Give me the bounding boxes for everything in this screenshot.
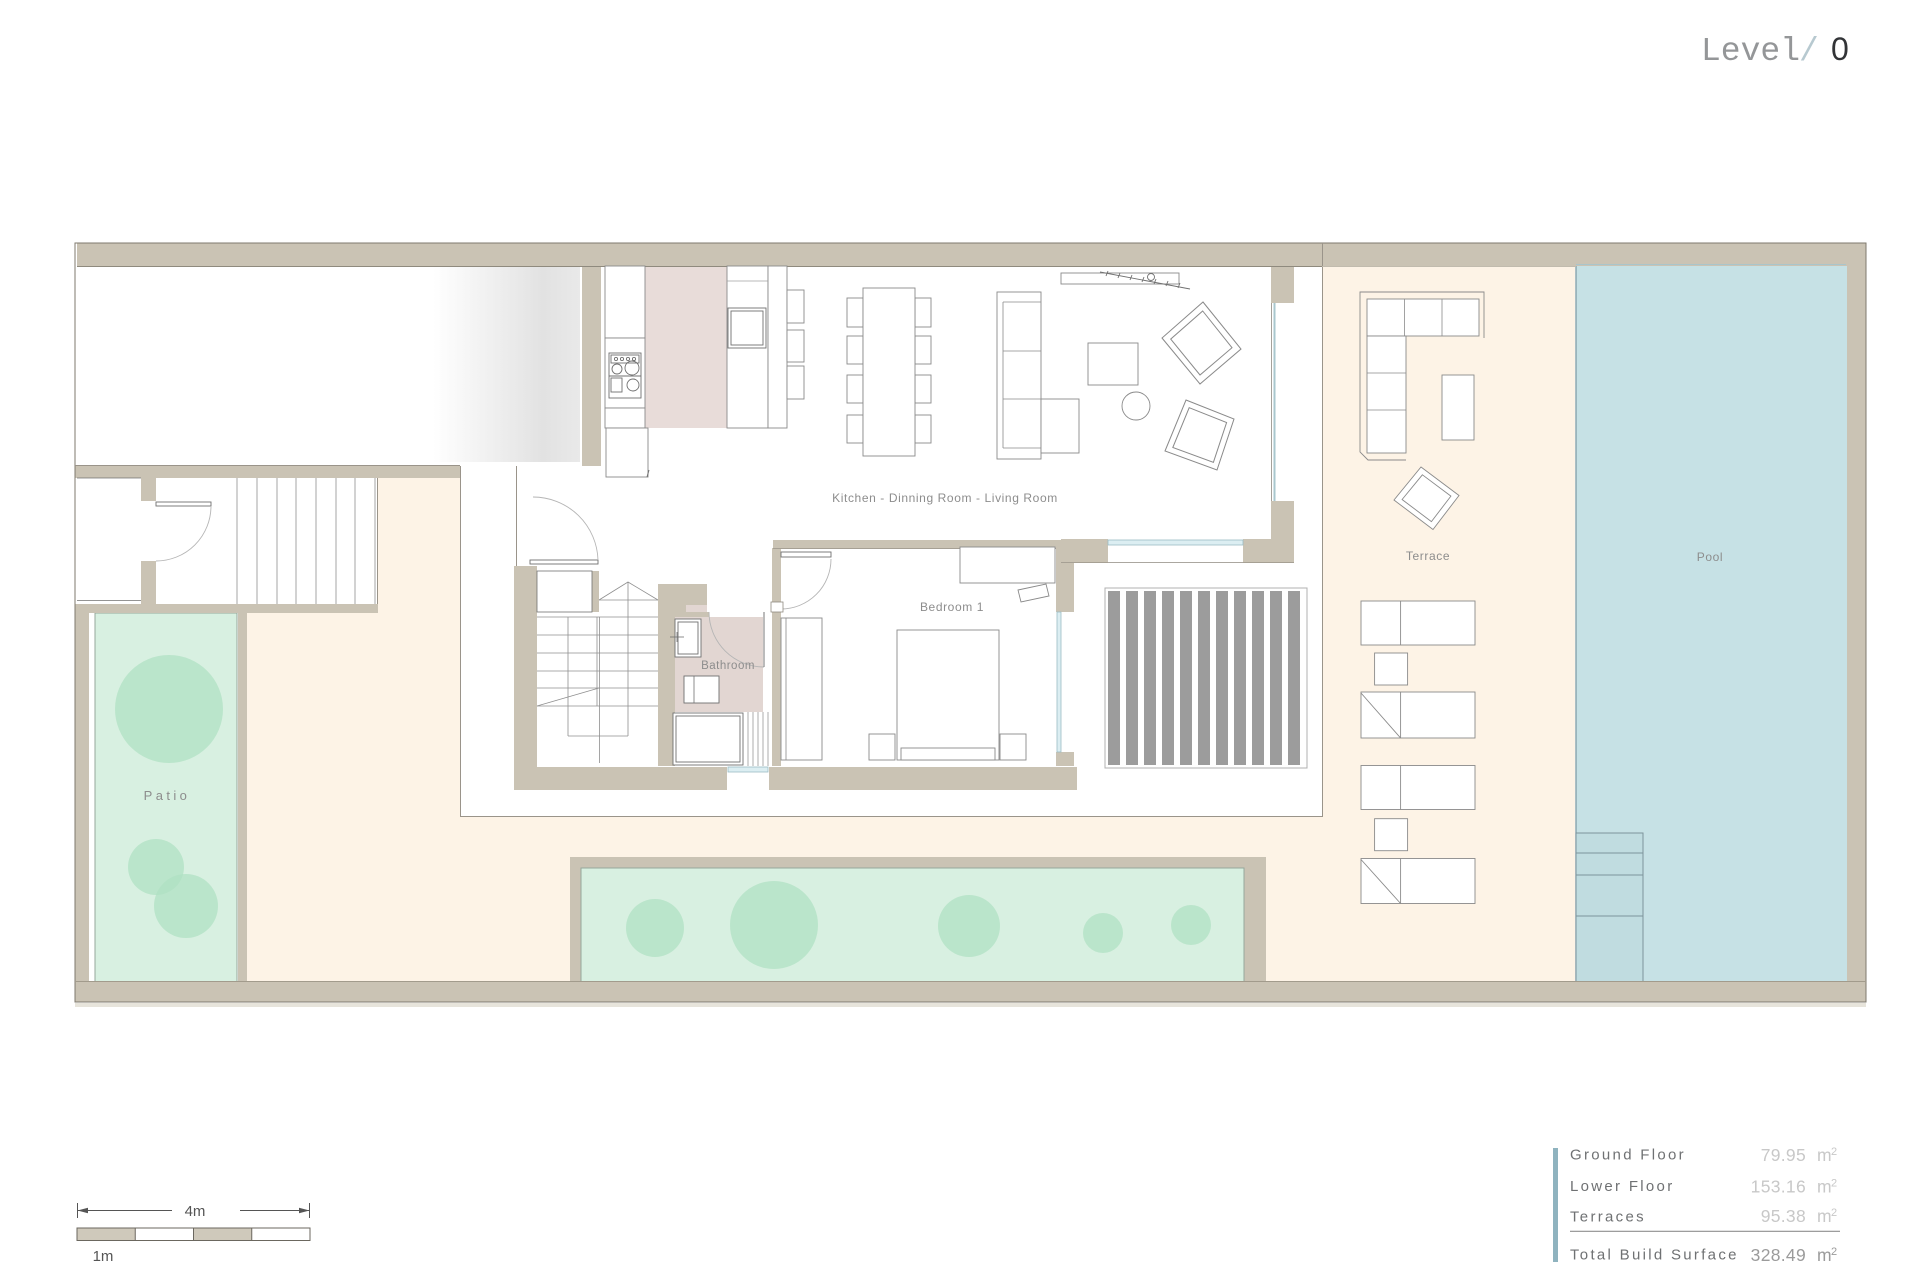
- svg-text:Terraces: Terraces: [1570, 1209, 1646, 1226]
- svg-text:Pool: Pool: [1697, 550, 1723, 564]
- svg-text:Bathroom: Bathroom: [701, 660, 755, 672]
- svg-text:153.16: 153.16: [1751, 1177, 1806, 1197]
- svg-text:4m: 4m: [185, 1203, 206, 1220]
- svg-text:1m: 1m: [93, 1248, 114, 1265]
- svg-text:2: 2: [1831, 1178, 1837, 1190]
- svg-text:95.38: 95.38: [1761, 1206, 1806, 1226]
- svg-text:Ground Floor: Ground Floor: [1570, 1147, 1686, 1164]
- svg-text:m: m: [1817, 1177, 1832, 1197]
- svg-text:0: 0: [1831, 31, 1849, 67]
- svg-text:m: m: [1817, 1206, 1832, 1226]
- svg-text:2: 2: [1831, 1207, 1837, 1219]
- svg-text:Kitchen - Dinning Room - Livin: Kitchen - Dinning Room - Living Room: [832, 491, 1058, 505]
- svg-text:Level: Level: [1701, 33, 1800, 70]
- svg-text:79.95: 79.95: [1761, 1145, 1806, 1165]
- svg-text:328.49: 328.49: [1751, 1245, 1806, 1265]
- svg-text:2: 2: [1831, 1246, 1837, 1258]
- svg-text:Terrace: Terrace: [1406, 549, 1450, 563]
- svg-text:m: m: [1817, 1145, 1832, 1165]
- svg-text:2: 2: [1831, 1146, 1837, 1158]
- svg-text:Patio: Patio: [144, 788, 191, 803]
- svg-text:/: /: [1799, 33, 1819, 70]
- svg-text:Lower Floor: Lower Floor: [1570, 1178, 1675, 1195]
- svg-text:Bedroom 1: Bedroom 1: [920, 600, 984, 614]
- svg-text:m: m: [1817, 1245, 1832, 1265]
- svg-text:Total Build Surface: Total Build Surface: [1570, 1247, 1739, 1264]
